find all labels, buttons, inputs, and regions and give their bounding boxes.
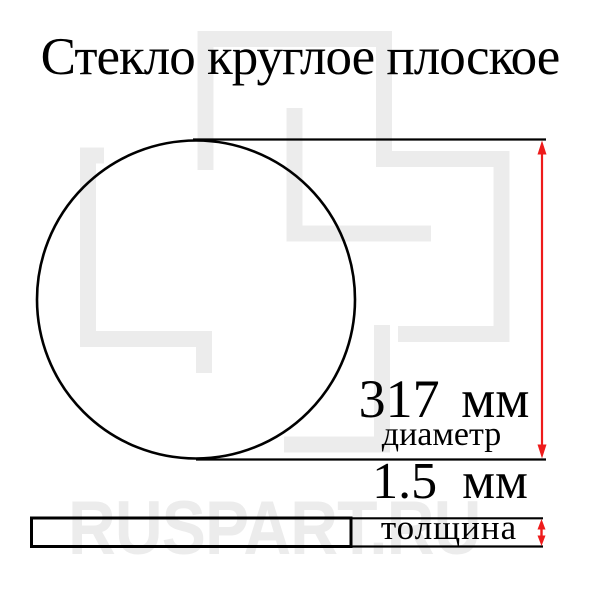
diameter-label: диаметр xyxy=(343,418,540,452)
thickness-label: толщина xyxy=(355,510,543,545)
thickness-value: 1.5 мм xyxy=(350,456,550,508)
glass-front-view-circle xyxy=(37,141,355,459)
glass-side-view xyxy=(32,518,352,547)
page-title: Стекло круглое плоское xyxy=(0,27,600,87)
product-diagram: RUSPART.RU Стекло круглое плоское 317 мм… xyxy=(0,0,600,600)
arrowhead-up-icon xyxy=(538,141,547,155)
